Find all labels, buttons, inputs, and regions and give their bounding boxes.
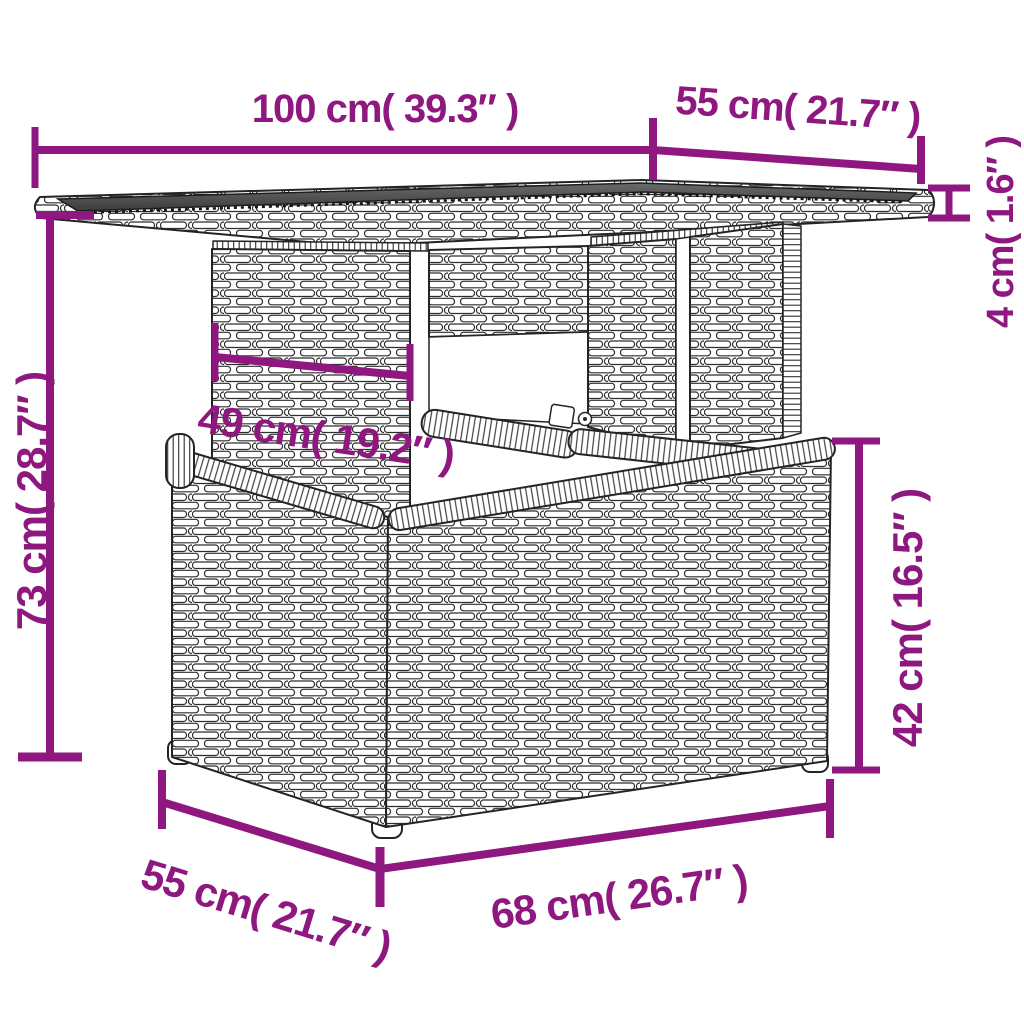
dim-label-tabletop-depth: 55 cm( 21.7″ ) (674, 79, 922, 140)
dim-label-tabletop-thickness: 4 cm( 1.6″ ) (980, 136, 1022, 328)
base-box (164, 434, 837, 838)
dim-label-total-height: 73 cm( 28.7″ ) (8, 372, 55, 630)
dim-total-height: 73 cm( 28.7″ ) (8, 215, 94, 757)
dim-line (653, 150, 921, 169)
front-band-above-window (429, 246, 588, 337)
inner-side-panel (588, 239, 676, 450)
dim-label-base-width: 68 cm( 26.7″ ) (488, 855, 750, 937)
dim-tabletop-thickness: 4 cm( 1.6″ ) (928, 136, 1022, 328)
dim-label-tabletop-width: 100 cm( 39.3″ ) (252, 87, 519, 131)
inner-corner-post (676, 237, 690, 450)
dim-tabletop-depth: 55 cm( 21.7″ ) (653, 79, 922, 184)
roll-end-cap-dot (583, 417, 587, 421)
product-dimension-diagram: 100 cm( 39.3″ ) 55 cm( 21.7″ ) 4 cm( 1.6… (0, 0, 1024, 1024)
right-edge-roll (783, 224, 801, 438)
roll-end-fitting (549, 404, 575, 428)
dim-label-base-depth: 55 cm( 21.7″ ) (136, 850, 397, 970)
dim-label-base-height: 42 cm( 16.5″ ) (884, 489, 931, 747)
dim-base-height: 42 cm( 16.5″ ) (832, 441, 931, 770)
right-side-panel (690, 224, 783, 449)
diagram-svg: 100 cm( 39.3″ ) 55 cm( 21.7″ ) 4 cm( 1.6… (0, 0, 1024, 1024)
table-drawing (35, 180, 934, 838)
dim-tabletop-width: 100 cm( 39.3″ ) (35, 87, 653, 188)
base-corner-roll (166, 434, 194, 488)
